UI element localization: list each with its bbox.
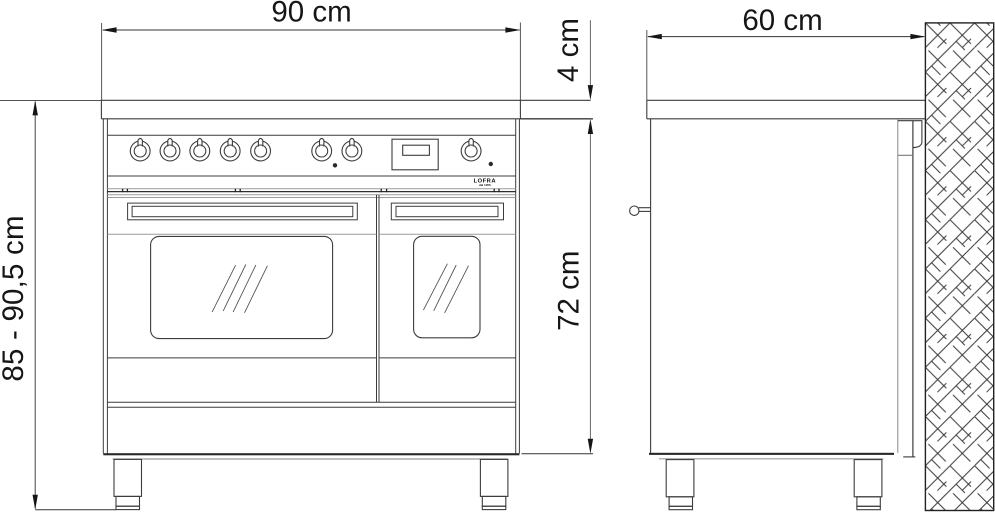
svg-text:dal 1956: dal 1956 <box>479 183 491 187</box>
svg-text:90 cm: 90 cm <box>271 0 351 28</box>
svg-text:60 cm: 60 cm <box>742 4 822 37</box>
svg-text:72 cm: 72 cm <box>553 251 586 331</box>
svg-text:85 - 90,5 cm: 85 - 90,5 cm <box>0 215 30 381</box>
svg-text:4 cm: 4 cm <box>552 18 585 82</box>
